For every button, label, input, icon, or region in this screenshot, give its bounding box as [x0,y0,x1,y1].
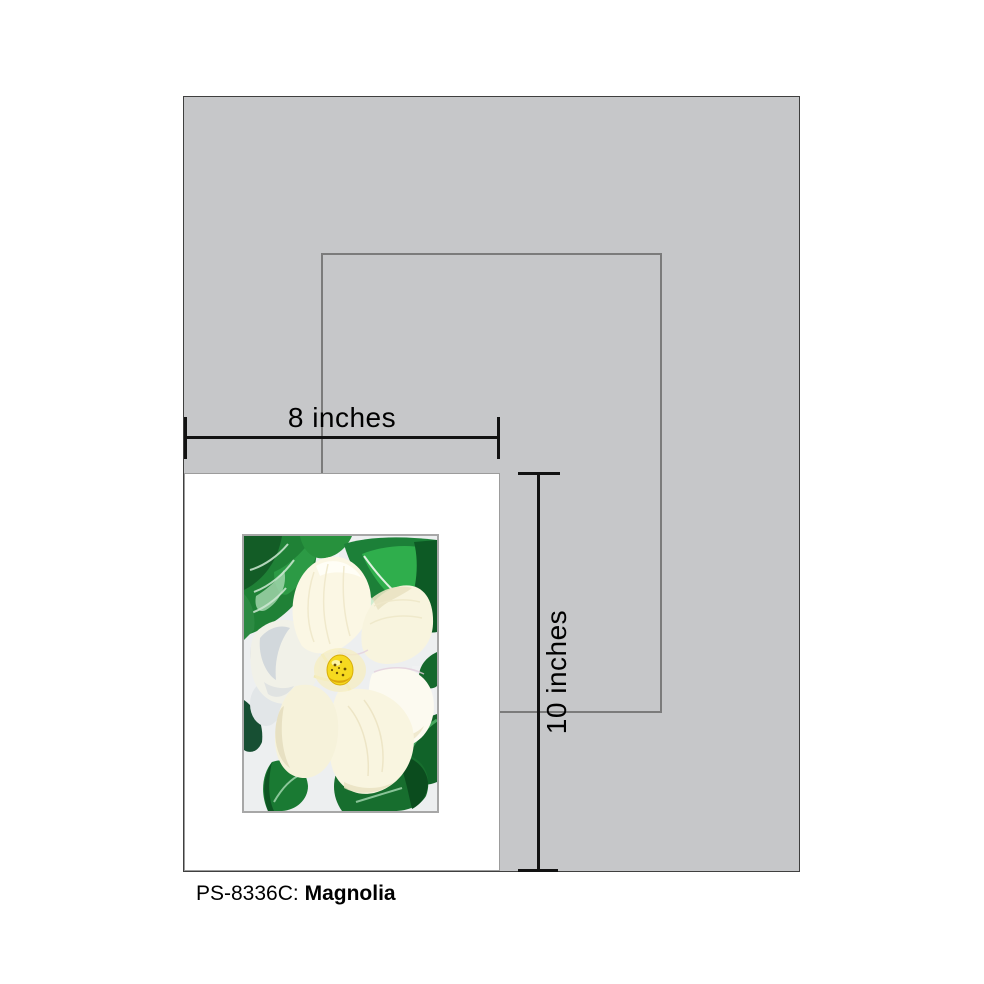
product-title: Magnolia [305,882,396,905]
product-caption: PS-8336C:Magnolia [196,882,396,906]
product-code: PS-8336C: [196,882,299,905]
width-line [184,436,500,439]
magnolia-painting-svg [244,536,437,811]
flower-center [314,648,366,692]
magnolia-artwork [242,534,439,813]
product-size-diagram: 8 inches 10 inches PS-8336C:Magnolia [0,0,984,984]
width-dimension-label: 8 inches [184,404,500,432]
height-dimension-label: 10 inches [540,472,574,872]
